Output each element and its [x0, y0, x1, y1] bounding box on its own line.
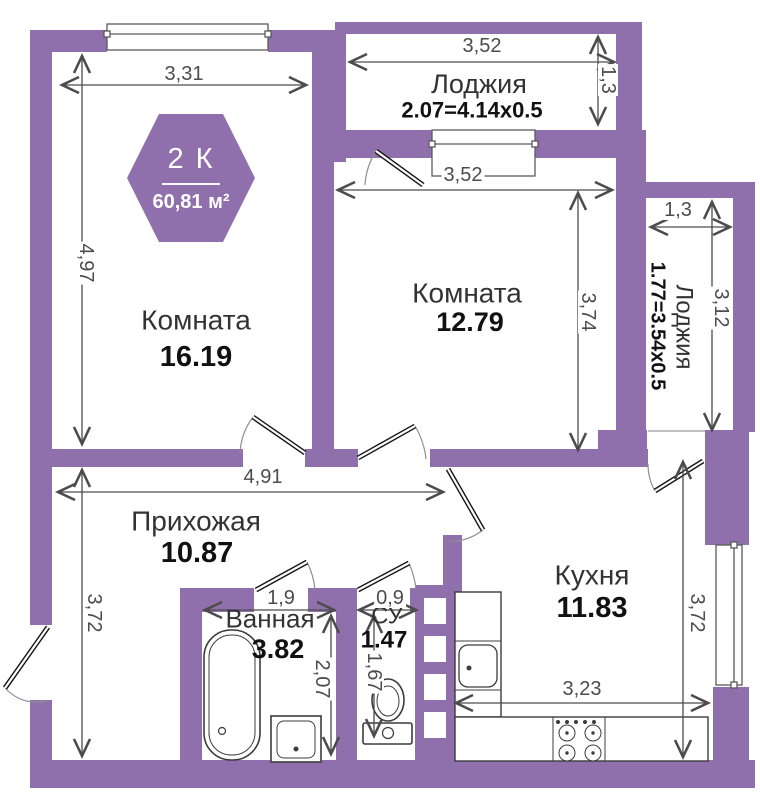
room-area-room1: 16.19 [160, 342, 233, 372]
dim-label-hall_h: 3,72 [84, 592, 104, 635]
room-label-bath: Ванная [225, 605, 314, 632]
room-area-room2: 12.79 [436, 308, 504, 336]
badge-divider [162, 183, 220, 185]
room-area-kitchen: 11.83 [557, 593, 628, 623]
apartment-area: 60,81 м² [152, 191, 229, 214]
room-area-loggia-top: 2.07=4.14x0.5 [401, 98, 542, 121]
room-area-loggia-right: 1.77=3.54x0.5 [647, 262, 668, 390]
dim-label-room1_h: 4,97 [76, 242, 96, 285]
room-area-wc: 1.47 [361, 627, 408, 652]
dim-label-hall_w: 4,91 [242, 467, 285, 487]
dim-label-loggia_top_w: 3,52 [461, 36, 504, 56]
dim-label-loggia_top_d: 1,3 [598, 64, 618, 96]
dim-label-wc_w: 0,9 [374, 588, 406, 608]
dim-label-loggia_right_h: 3,12 [711, 287, 731, 330]
room-label-hall: Прихожая [131, 506, 261, 535]
dim-label-bath_w: 1,9 [265, 588, 297, 608]
room-label-room2: Комната [412, 278, 522, 307]
floor-plan: Комната 16.19 Комната 12.79 Лоджия 2.07=… [0, 0, 760, 809]
room-area-bath: 3.82 [252, 635, 305, 663]
dim-label-room2_h: 3,74 [578, 291, 598, 334]
room-area-hall: 10.87 [161, 538, 234, 568]
dim-label-bath_h: 2,07 [312, 658, 332, 701]
apartment-type: 2 К [167, 143, 214, 176]
room-label-loggia-right: Лоджия [671, 284, 696, 369]
dim-label-kitchen_w: 3,23 [561, 679, 604, 699]
dim-label-loggia_right_w: 1,3 [662, 200, 694, 220]
dim-label-kitchen_h: 3,72 [687, 592, 707, 635]
dim-label-wc_h: 1,67 [364, 651, 384, 694]
room-label-kitchen: Кухня [555, 560, 630, 589]
room-label-loggia-top: Лоджия [431, 70, 527, 98]
dim-label-room2_w: 3,52 [442, 165, 485, 185]
dim-label-room1_w: 3,31 [163, 64, 206, 84]
room-label-room1: Комната [141, 305, 251, 334]
